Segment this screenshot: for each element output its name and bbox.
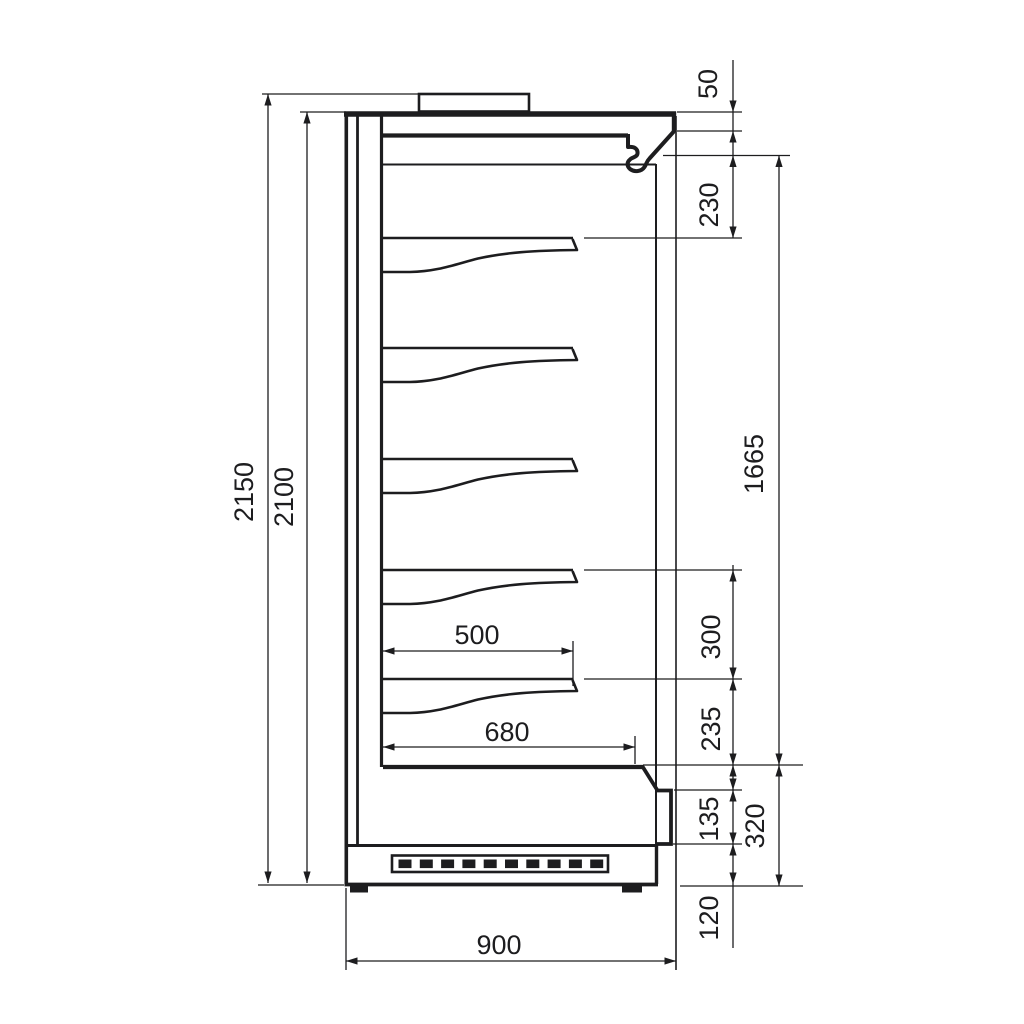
dim-base-section-height: 320 [740,803,770,848]
right-foot [622,884,642,893]
shelf-5 [383,679,577,713]
dim-canopy-to-first-shelf: 230 [694,182,724,227]
cabinet-side-section-drawing: 2150 2100 50 230 1665 300 235 135 320 12… [0,0,1024,1024]
shelf-1 [383,238,577,272]
dim-plinth-height: 120 [694,895,724,940]
top-duct-box [419,94,529,112]
dim-display-opening-height: 1665 [739,434,769,494]
cabinet-structure [344,94,676,970]
shelf-4 [383,570,577,604]
dim-cabinet-height: 2100 [269,467,299,527]
dim-overall-depth: 900 [476,930,521,960]
dim-shelf-spacing: 300 [696,614,726,659]
grille-slots [399,860,604,869]
technical-drawing-canvas: 2150 2100 50 230 1665 300 235 135 320 12… [0,0,1024,1024]
left-foot [350,884,368,893]
dim-shelf-depth: 500 [454,620,499,650]
dimension-labels: 2150 2100 50 230 1665 300 235 135 320 12… [229,69,770,960]
dim-overall-height: 2150 [229,462,259,522]
dim-deck-depth: 680 [484,717,529,747]
shelf-2 [383,348,577,382]
dim-lower-front-panel: 135 [694,796,724,841]
dim-last-shelf-to-deck: 235 [696,706,726,751]
dim-canopy-front-height: 50 [693,69,723,99]
shelf-3 [383,459,577,493]
ventilation-grille [392,856,608,873]
